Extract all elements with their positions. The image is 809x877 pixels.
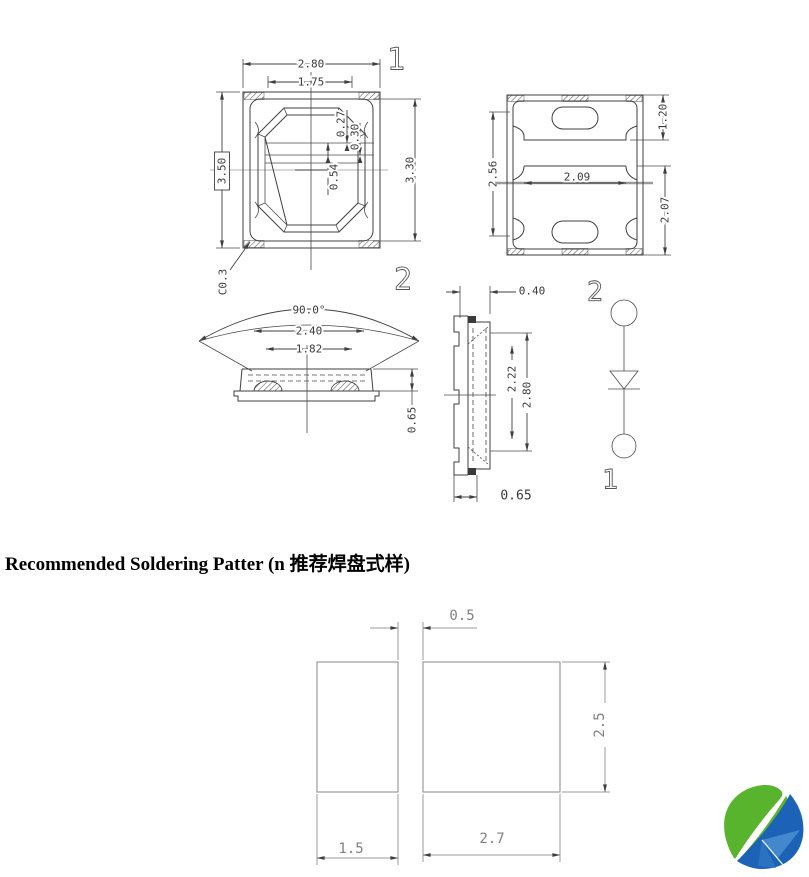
beam-cone	[199, 309, 419, 371]
dim-0-65-side: 0.65	[373, 369, 419, 433]
dim-offset-a-label: 0.27	[335, 111, 348, 138]
dim-2-22: 2.22	[506, 346, 519, 439]
side-view-marker: 2	[375, 255, 435, 305]
circuit-diagram: 2 1	[558, 272, 678, 507]
dim-lens-inner-label: 1.82	[296, 343, 323, 356]
circuit-terminal-bottom	[612, 434, 636, 458]
dim-left-span-label: 2.56	[487, 161, 500, 188]
dim-height-label: 2.5	[592, 712, 608, 737]
dim-pad-width-label: 2.09	[564, 171, 591, 184]
dim-2-09: 2.09	[524, 171, 626, 184]
diode-symbol	[608, 371, 640, 389]
dim-offset-b-label: 0.30	[349, 124, 362, 151]
profile-body	[444, 316, 496, 475]
dim-0-40: 0.40	[446, 285, 545, 319]
dim-angle-label: 90.0°	[292, 304, 325, 317]
dim-lens-outer-label: 2.40	[296, 325, 323, 338]
dim-side-label: 3.30	[404, 157, 417, 184]
dim-1-82: 1.82	[266, 343, 352, 356]
dim-2-40: 2.40	[254, 325, 364, 338]
dim-inner-width-label: 1.75	[298, 76, 325, 89]
dim-2-07: 2.07	[637, 166, 672, 255]
solder-pattern: 0.5 2.5 1.5 2.7	[280, 600, 625, 877]
dim-0-30: 0.30	[349, 123, 363, 163]
dim-left-width-label: 1.5	[338, 841, 363, 857]
dim-0-54: 0.54	[326, 143, 341, 195]
dim-gap-0-5: 0.5	[370, 608, 477, 660]
dim-height-2-5: 2.5	[562, 662, 610, 792]
dim-width-label: 2.80	[298, 58, 325, 71]
circuit-terminal-top	[611, 300, 637, 326]
dim-inner-height-label: 2.22	[506, 366, 519, 393]
datasheet-page: 2.80 1.75 3.50 0.54	[0, 0, 809, 877]
dim-tab-label: 0.40	[519, 285, 546, 298]
pin-2-marker: 2	[394, 263, 412, 298]
soldering-heading: Recommended Soldering Patter (n 推荐焊盘式样)	[5, 549, 525, 576]
dim-right-span-label: 2.07	[659, 197, 672, 224]
dim-center-label: 0.54	[328, 163, 341, 190]
bottom-view: 2.09 2.56 1.20 2.07	[480, 70, 680, 275]
circuit-pin-1-label: 1	[602, 465, 618, 496]
side-view-body	[234, 345, 379, 433]
dim-left-1-5: 1.5	[317, 794, 398, 865]
solder-pad-left	[317, 662, 398, 792]
dim-pad-top-label: 1.20	[657, 104, 670, 131]
pin-1-marker: 1	[387, 43, 405, 78]
logo-mark	[724, 785, 803, 869]
dim-gap-label: 0.5	[449, 608, 474, 624]
dim-height-label: 3.50	[216, 158, 229, 185]
dim-height-label: 2.80	[521, 382, 534, 409]
dim-2-56: 2.56	[487, 112, 511, 236]
dim-0-27: 0.27	[335, 110, 350, 151]
dim-foot-label: 0.65	[500, 489, 531, 504]
dim-base-height-label: 0.65	[406, 407, 419, 434]
dim-1-75: 1.75	[268, 76, 352, 89]
circuit-pin-2-label: 2	[587, 277, 603, 308]
company-logo	[716, 780, 808, 875]
dim-right-2-7: 2.7	[423, 794, 560, 862]
dim-right-width-label: 2.7	[479, 831, 504, 847]
top-view: 2.80 1.75 3.50 0.54	[200, 30, 430, 290]
solder-pad-right	[423, 662, 560, 792]
dim-0-65-profile: 0.65	[454, 475, 532, 504]
